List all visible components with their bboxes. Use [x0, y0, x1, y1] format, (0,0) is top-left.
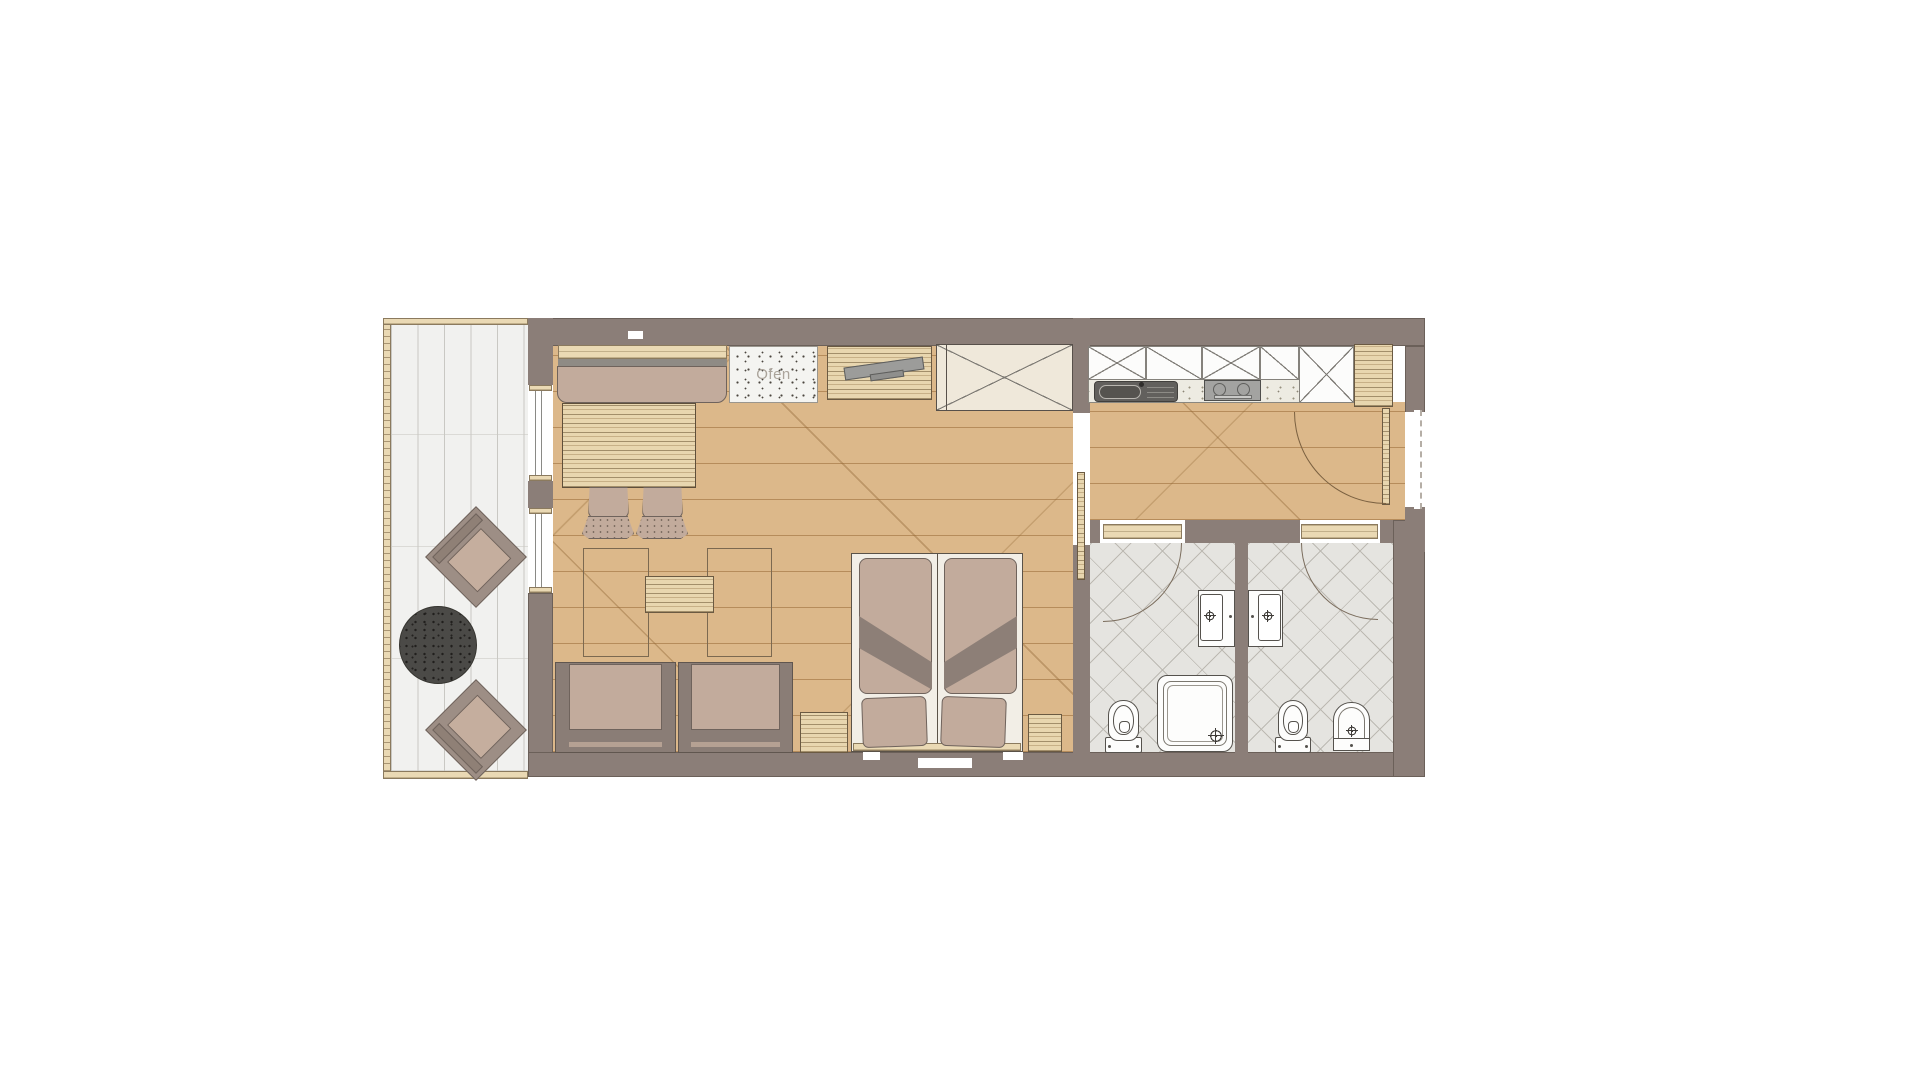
coffee-table: [645, 576, 714, 613]
faucet-icon: [1204, 610, 1216, 622]
wardrobe: [936, 344, 1073, 411]
wall-bottom-window-wide: [918, 758, 972, 768]
wall-right-bottom: [1393, 520, 1425, 777]
sofa-cushion: [691, 664, 780, 730]
bathroom1-vanity: [1198, 590, 1235, 647]
pillow-right: [940, 696, 1007, 748]
window-sill-block: [529, 475, 552, 481]
window-sill-block: [529, 508, 552, 514]
dining-chair-1-back: [582, 516, 634, 539]
vanity-knob: [1229, 615, 1232, 618]
terrace-round-rug: [399, 606, 477, 684]
kitchen-sink: [1094, 381, 1178, 402]
wall-right-top: [1405, 346, 1425, 415]
kitchen-cabinet-2: [1146, 346, 1202, 380]
toilet-bolt: [1305, 745, 1308, 748]
floor-outline-right: [707, 548, 772, 657]
sliding-door-leaf: [1077, 472, 1085, 580]
floor-outline-left: [583, 548, 649, 657]
ofen-stove: Ofen: [729, 346, 818, 403]
wall-right-mid-stub: [1405, 505, 1425, 552]
entry-threshold-dashed: [1414, 410, 1422, 509]
cooktop-control-strip: [1214, 395, 1252, 399]
wall-top: [528, 318, 1425, 346]
wall-bottom-window-small-left: [863, 752, 880, 760]
pillow-left: [861, 696, 928, 748]
terrace-border-left: [383, 318, 391, 779]
wall-terrace-lower: [528, 593, 553, 777]
terrace-border-top: [383, 318, 528, 325]
toilet-bolt: [1136, 745, 1139, 748]
kitchen-cabinet-4: [1260, 346, 1299, 380]
floor-plan-canvas: Ofen: [0, 0, 1920, 1080]
wall-bathrooms-middle: [1235, 543, 1248, 755]
faucet-icon: [1262, 610, 1274, 622]
terrace-window-bottom: [528, 508, 553, 593]
toilet-bowl: [1108, 700, 1139, 741]
sofa-back-stripe: [691, 742, 780, 747]
kitchen-tall-cabinet: [1299, 346, 1354, 403]
vanity-knob: [1251, 615, 1254, 618]
kitchen-cabinet-1: [1088, 346, 1146, 380]
sink-faucet: [1139, 382, 1144, 387]
kitchen-wood-cupboard: [1354, 344, 1393, 407]
wall-terrace-pier-top: [528, 318, 553, 385]
dining-bench: [557, 366, 727, 403]
wall-bottom-window-small-right: [1003, 752, 1023, 760]
dining-chair-2-back: [636, 516, 688, 539]
bathroom1-toilet: [1105, 700, 1142, 753]
sofa-back-stripe: [569, 742, 662, 747]
wall-socket: [628, 331, 643, 339]
sofa-module-left: [555, 662, 676, 753]
nightstand-left: [800, 712, 848, 753]
sofa-cushion: [569, 664, 662, 730]
bench-shelf: [558, 345, 727, 359]
window-sill-block: [529, 587, 552, 593]
bidet: [1333, 702, 1370, 751]
nightstand-right: [1028, 714, 1062, 752]
bidet-body: [1333, 702, 1370, 740]
sink-basin: [1099, 385, 1141, 399]
faucet-icon: [1346, 725, 1358, 737]
sink-drainer-lines: [1147, 386, 1174, 398]
shower-drain-icon: [1208, 728, 1224, 744]
toilet-bowl: [1278, 700, 1308, 741]
toilet-drain: [1288, 721, 1299, 733]
bathroom1-door-leaf: [1103, 524, 1182, 539]
shower: [1157, 675, 1233, 752]
wall-terrace-pier-mid: [528, 481, 553, 508]
toilet-drain: [1119, 721, 1130, 733]
bed-center-line: [937, 554, 938, 751]
dining-table: [562, 403, 696, 488]
double-bed: [851, 553, 1023, 752]
toilet-bolt: [1108, 745, 1111, 748]
bathroom2-vanity: [1248, 590, 1283, 647]
wardrobe-door-line: [946, 345, 947, 410]
sofa-module-right: [678, 662, 793, 753]
bidet-base: [1333, 738, 1370, 751]
window-sill-block: [529, 385, 552, 391]
terrace-border-bottom: [383, 771, 528, 779]
dining-chair-2-seat: [642, 487, 683, 519]
ofen-label: Ofen: [756, 366, 791, 383]
bidet-drain-dot: [1350, 744, 1353, 747]
toilet-bolt: [1278, 745, 1281, 748]
dining-chair-1-seat: [588, 487, 629, 519]
cooktop: [1204, 380, 1261, 401]
bathroom2-toilet: [1275, 700, 1311, 753]
bathroom2-door-leaf: [1301, 524, 1378, 539]
kitchen-cabinet-3: [1202, 346, 1260, 380]
wall-bottom: [528, 752, 1425, 777]
terrace-window-top: [528, 385, 553, 481]
